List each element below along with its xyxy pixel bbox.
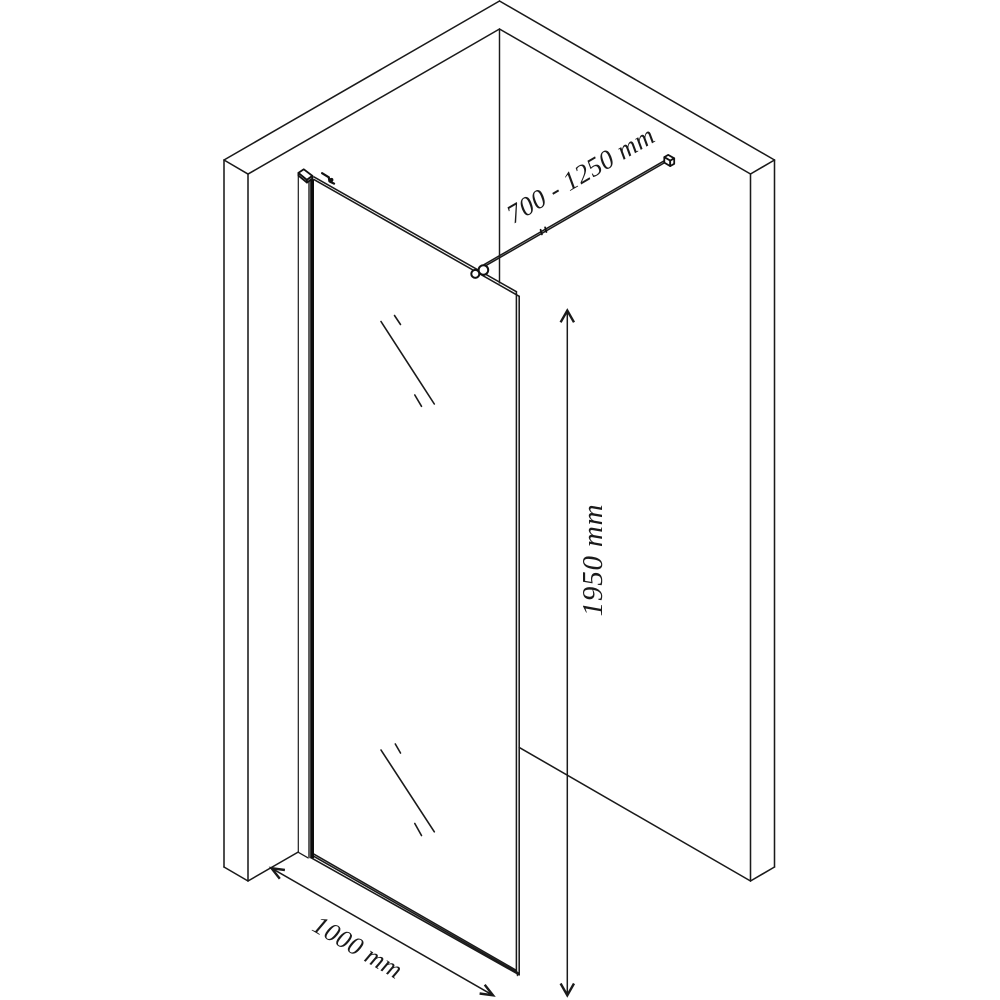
svg-text:1950 mm: 1950 mm [577, 504, 609, 617]
